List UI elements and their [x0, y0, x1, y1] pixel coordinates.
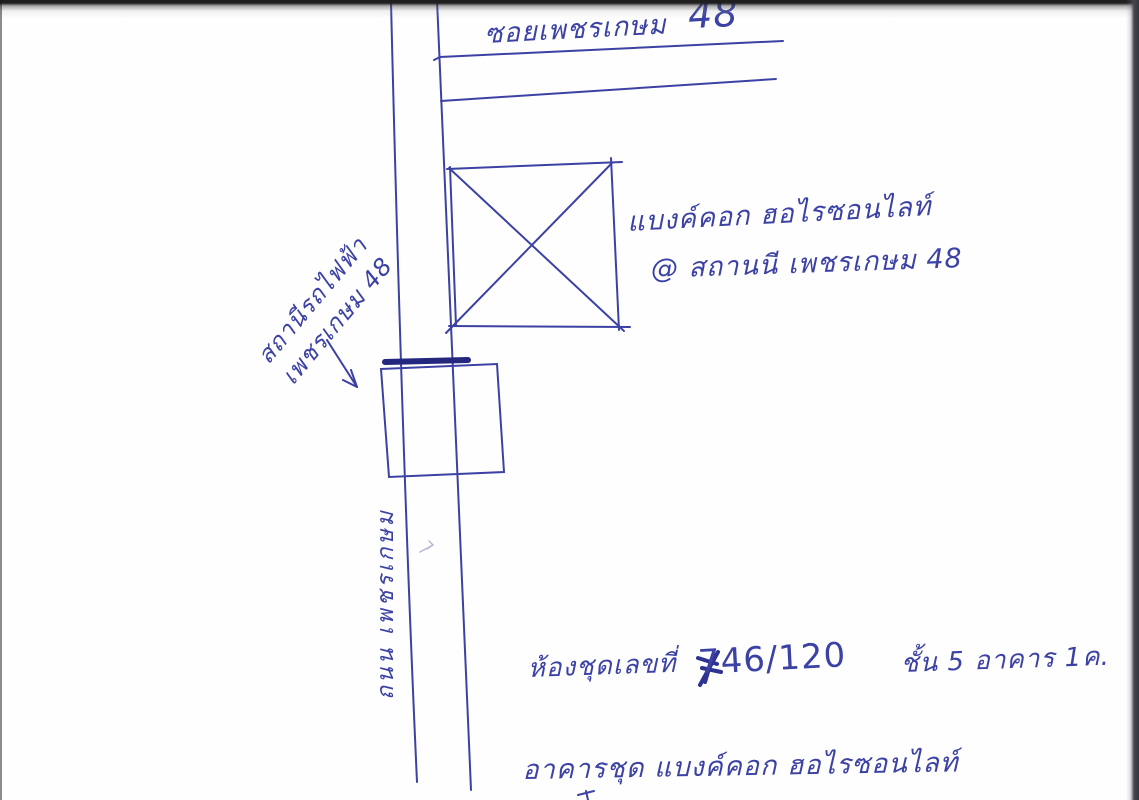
floor-building-label: ชั้น 5 อาคาร 1ค. — [900, 636, 1110, 684]
box-diagonal-1 — [449, 168, 624, 331]
scan-edge-right — [1126, 0, 1139, 800]
scan-edge-top — [0, 0, 1139, 18]
station-square — [381, 360, 504, 477]
scanned-hand-drawn-location-map: ซอยเพชรเกษม48 แบงค์คอก ฮอไรซอนไลท์ @ สถา… — [0, 0, 1139, 800]
cut-off-text-stroke — [578, 791, 594, 800]
road-line-east — [437, 0, 471, 790]
faint-pen-mark — [420, 541, 433, 552]
scan-edge-left — [0, 0, 2, 800]
station-square-heavy-top-stroke — [385, 360, 468, 362]
condominium-building-label: อาคารชุด แบงค์คอก ฮอไรซอนไลท์ — [522, 740, 959, 791]
unit-number-value: 746/120 — [697, 635, 847, 683]
crossed-building-box — [446, 158, 630, 333]
unit-number-prefix: ห้องชุดเลขที่ — [527, 643, 677, 689]
phetkasem-road-label: ถนน เพชรเกษม — [368, 508, 404, 700]
soi-line-bottom — [441, 79, 776, 101]
